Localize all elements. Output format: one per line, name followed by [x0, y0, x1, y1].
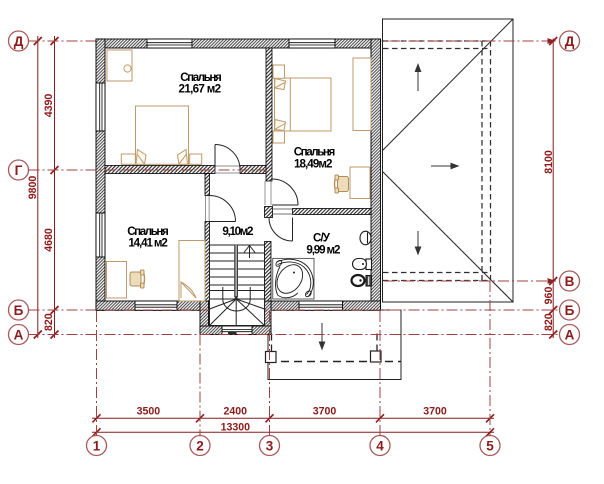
svg-text:В: В: [565, 274, 575, 289]
svg-text:2: 2: [196, 439, 204, 454]
svg-text:9800: 9800: [27, 176, 39, 200]
svg-text:Г: Г: [15, 163, 23, 178]
svg-text:4390: 4390: [43, 94, 55, 118]
svg-text:3: 3: [266, 439, 274, 454]
svg-text:4: 4: [376, 439, 384, 454]
svg-text:3700: 3700: [423, 406, 447, 418]
svg-text:9,99 м2: 9,99 м2: [306, 243, 340, 256]
svg-text:18,49м2: 18,49м2: [294, 157, 333, 170]
svg-text:820: 820: [43, 313, 55, 331]
svg-text:Д: Д: [14, 34, 24, 49]
svg-text:820: 820: [543, 313, 555, 331]
svg-text:1: 1: [93, 439, 101, 454]
svg-text:3700: 3700: [313, 406, 337, 418]
svg-text:3500: 3500: [137, 406, 161, 418]
svg-text:4680: 4680: [43, 228, 55, 252]
svg-text:Д: Д: [565, 34, 575, 49]
svg-text:9,10м2: 9,10м2: [222, 225, 253, 238]
svg-text:960: 960: [543, 287, 555, 305]
svg-text:2400: 2400: [224, 406, 248, 418]
svg-text:А: А: [565, 328, 575, 343]
svg-text:Б: Б: [14, 303, 24, 318]
svg-text:Б: Б: [565, 303, 575, 318]
svg-text:13300: 13300: [221, 421, 251, 433]
svg-text:21,67 м2: 21,67 м2: [179, 83, 222, 96]
svg-text:5: 5: [486, 439, 494, 454]
svg-text:А: А: [14, 328, 24, 343]
svg-text:14,41 м2: 14,41 м2: [128, 237, 168, 250]
svg-text:8100: 8100: [543, 150, 555, 174]
